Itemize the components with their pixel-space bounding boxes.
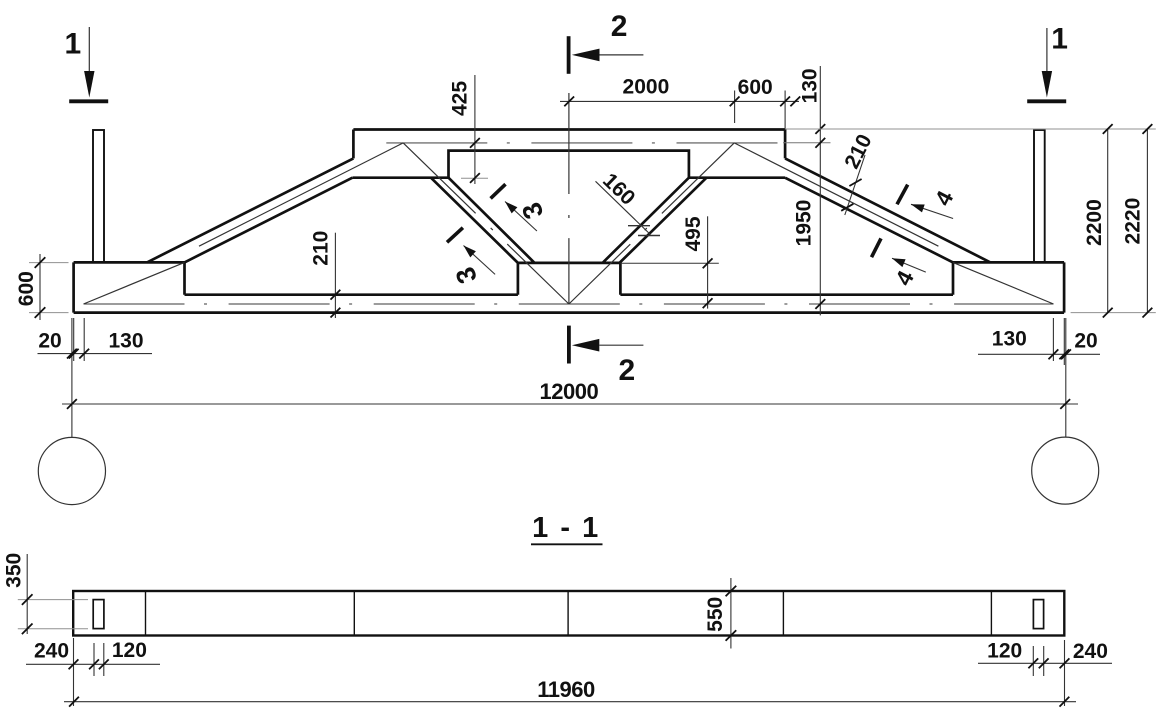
- svg-text:2220: 2220: [1121, 198, 1144, 245]
- svg-text:350: 350: [3, 553, 26, 588]
- svg-text:1: 1: [1051, 22, 1068, 55]
- svg-text:4: 4: [890, 266, 919, 289]
- svg-text:130: 130: [992, 327, 1027, 350]
- svg-text:210: 210: [310, 231, 333, 266]
- svg-text:600: 600: [15, 271, 38, 306]
- svg-text:4: 4: [929, 186, 958, 209]
- svg-text:1: 1: [64, 28, 81, 61]
- svg-text:240: 240: [1073, 640, 1108, 663]
- svg-text:2000: 2000: [623, 76, 670, 99]
- svg-text:11960: 11960: [537, 677, 595, 702]
- svg-text:130: 130: [798, 68, 821, 103]
- svg-text:425: 425: [449, 81, 472, 116]
- svg-text:20: 20: [1074, 329, 1097, 352]
- svg-text:3: 3: [516, 198, 549, 222]
- svg-text:2200: 2200: [1083, 199, 1106, 246]
- svg-text:160: 160: [598, 169, 639, 210]
- svg-text:12000: 12000: [540, 379, 599, 404]
- svg-text:495: 495: [682, 216, 705, 251]
- svg-text:20: 20: [38, 330, 61, 353]
- svg-text:210: 210: [840, 131, 876, 173]
- svg-text:2: 2: [618, 354, 635, 387]
- svg-text:1 - 1: 1 - 1: [532, 512, 600, 544]
- svg-text:3: 3: [450, 263, 483, 287]
- svg-text:240: 240: [34, 640, 69, 663]
- svg-text:2: 2: [611, 10, 628, 43]
- svg-text:600: 600: [738, 76, 773, 99]
- svg-text:120: 120: [112, 639, 147, 662]
- svg-text:1950: 1950: [793, 200, 816, 247]
- svg-text:550: 550: [704, 597, 727, 632]
- svg-text:130: 130: [108, 330, 143, 353]
- svg-text:120: 120: [987, 639, 1022, 662]
